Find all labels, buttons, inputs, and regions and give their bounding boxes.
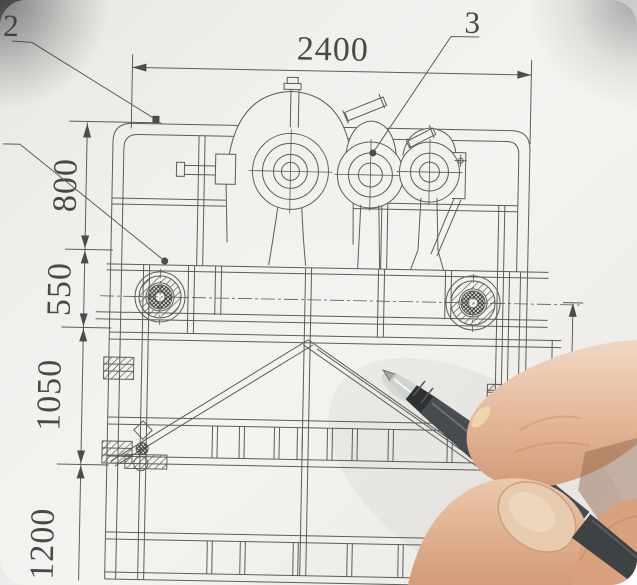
dim-left-1050: 1050 [30,358,68,431]
dim-top-label: 2400 [296,31,369,69]
corner-shade-topleft [0,0,110,110]
photo-of-engineering-drawing: 2400 800 550 1050 1200 1403 2 [0,0,637,585]
callout-3-label: 3 [464,5,480,40]
corner-shade-topright [527,0,637,110]
dim-left-800: 800 [47,158,85,213]
dim-left-1200: 1200 [24,507,62,580]
drawing-photo-canvas: 2400 800 550 1050 1200 1403 2 [0,0,637,585]
dim-left-550: 550 [41,262,79,317]
